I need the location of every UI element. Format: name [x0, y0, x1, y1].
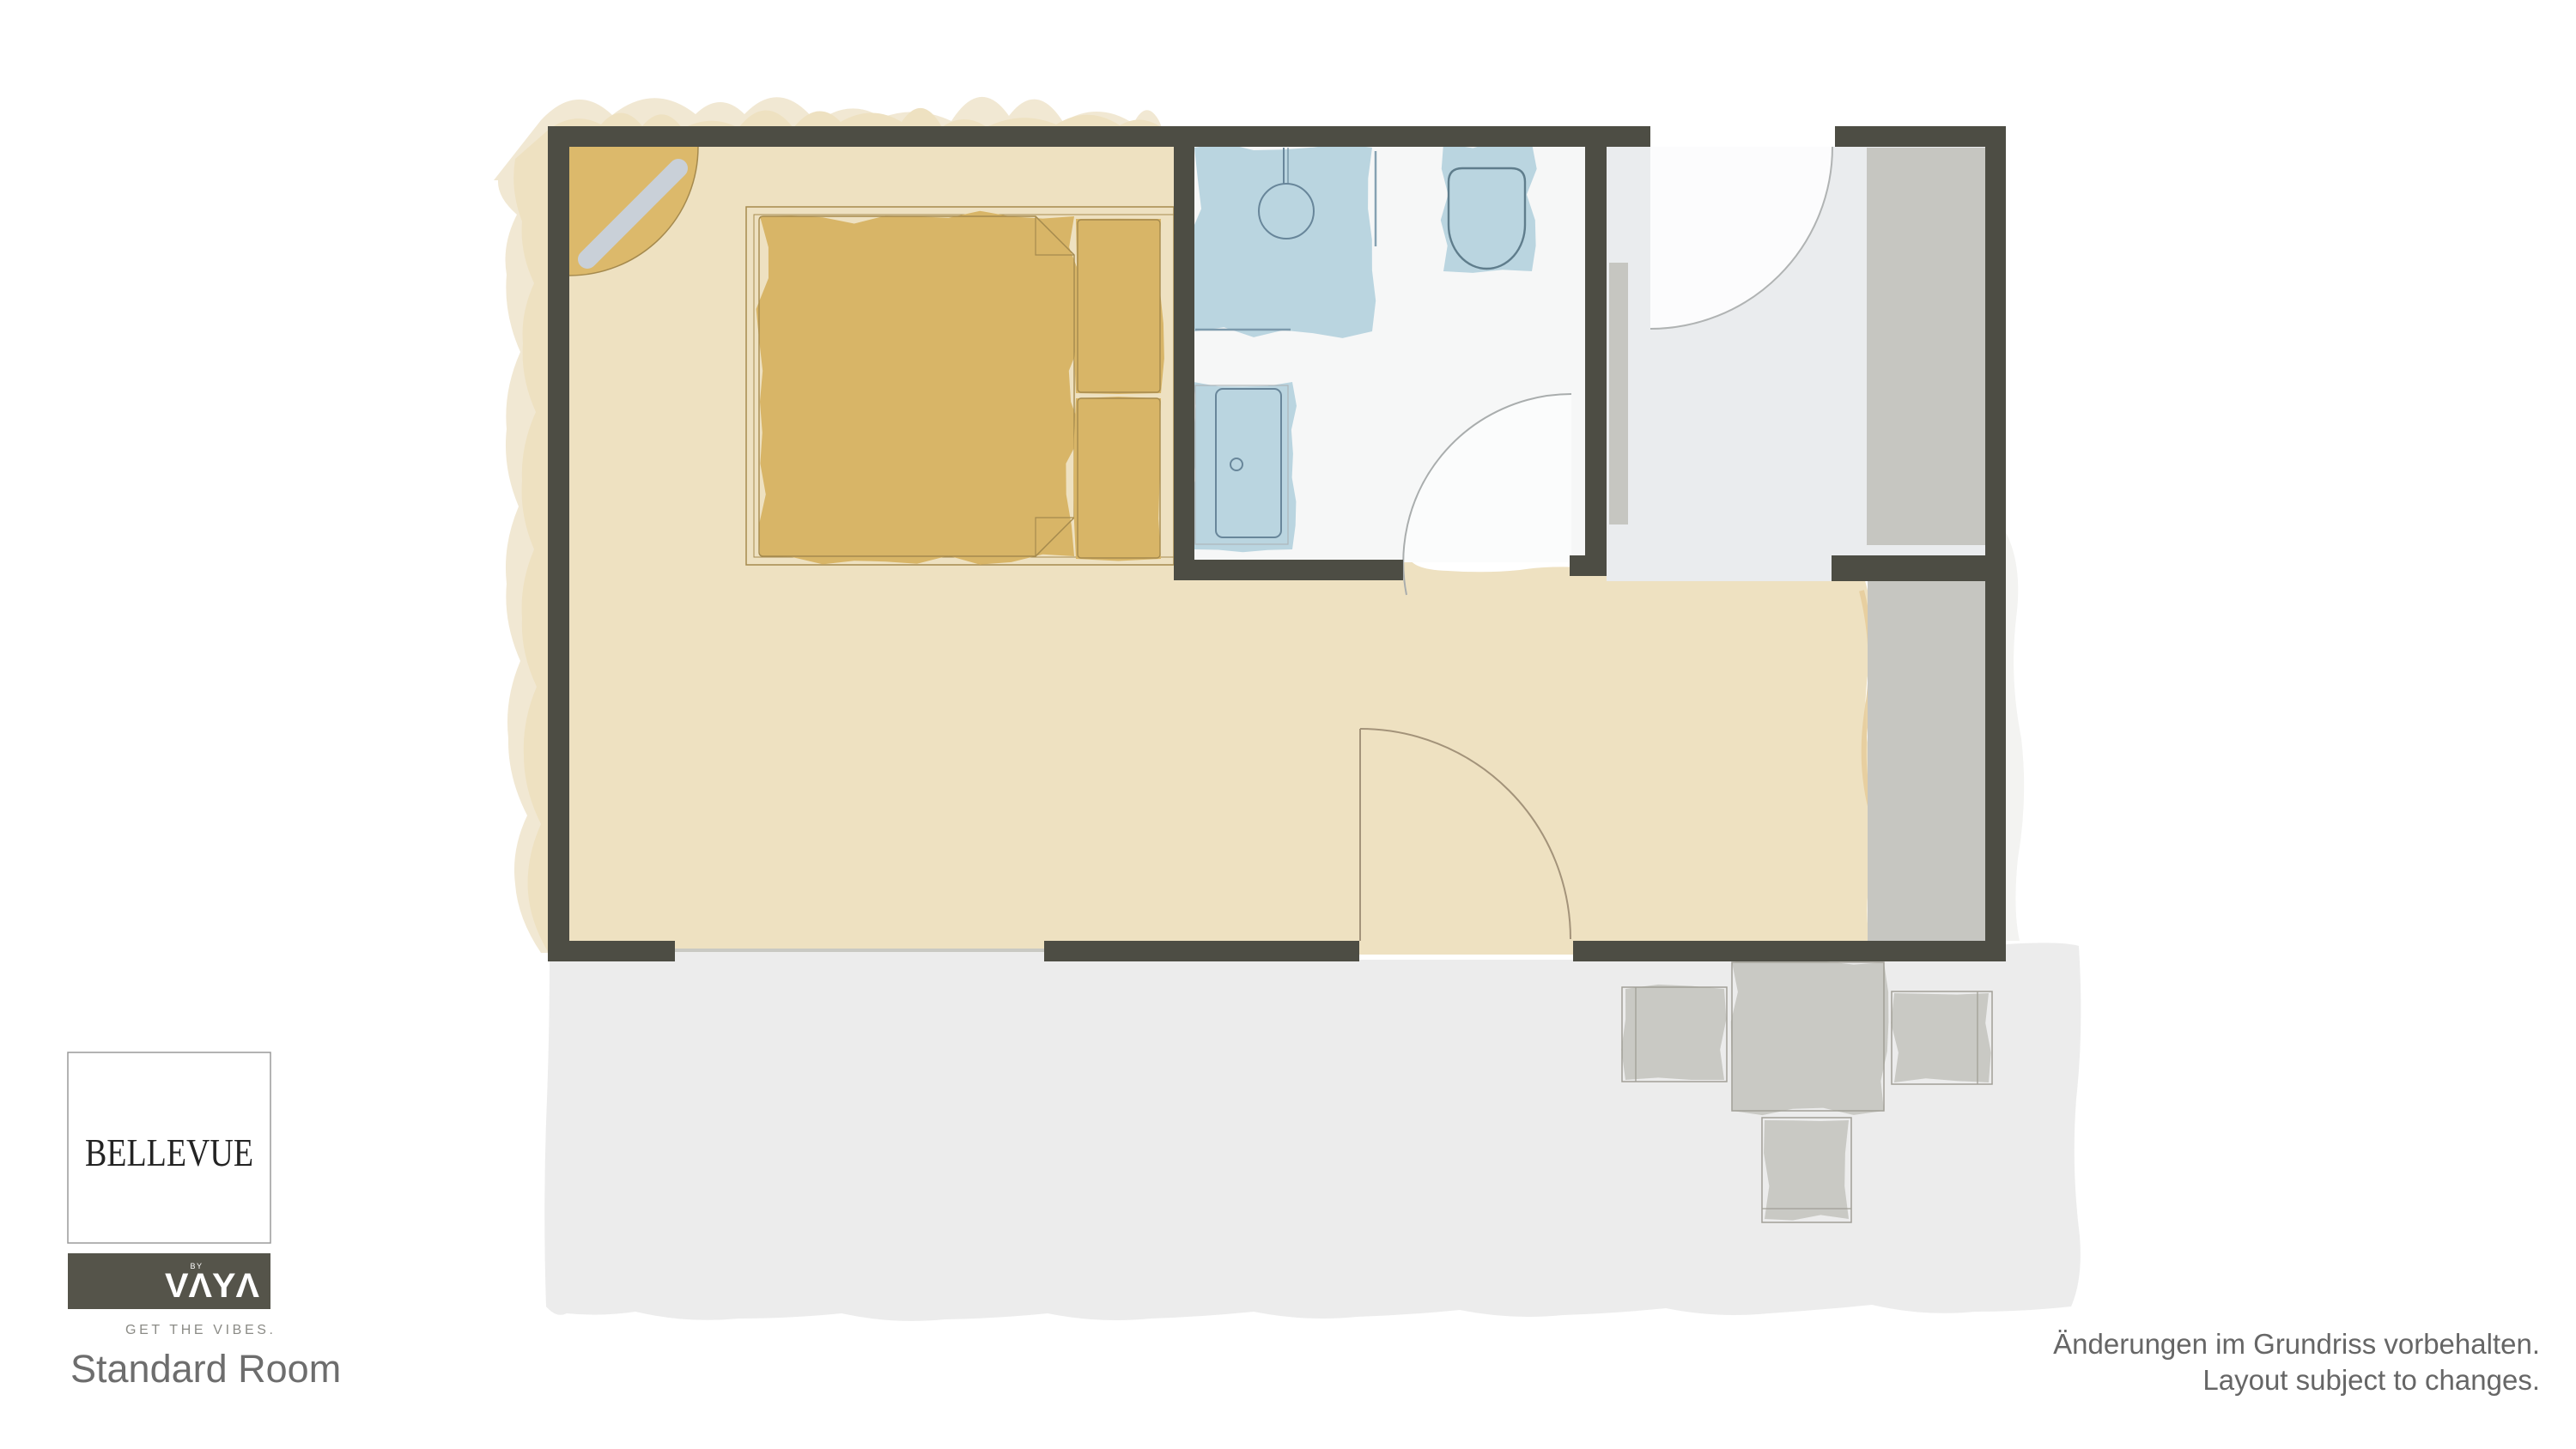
svg-text:VΛYΛ: VΛYΛ: [165, 1267, 259, 1305]
svg-text:GET THE VIBES.: GET THE VIBES.: [125, 1323, 273, 1337]
svg-text:BELLEVUE: BELLEVUE: [85, 1131, 253, 1174]
svg-text:Layout subject to changes.: Layout subject to changes.: [2202, 1364, 2540, 1396]
svg-text:Standard Room: Standard Room: [70, 1347, 341, 1391]
svg-text:Änderungen im Grundriss vorbeh: Änderungen im Grundriss vorbehalten.: [2053, 1328, 2540, 1360]
